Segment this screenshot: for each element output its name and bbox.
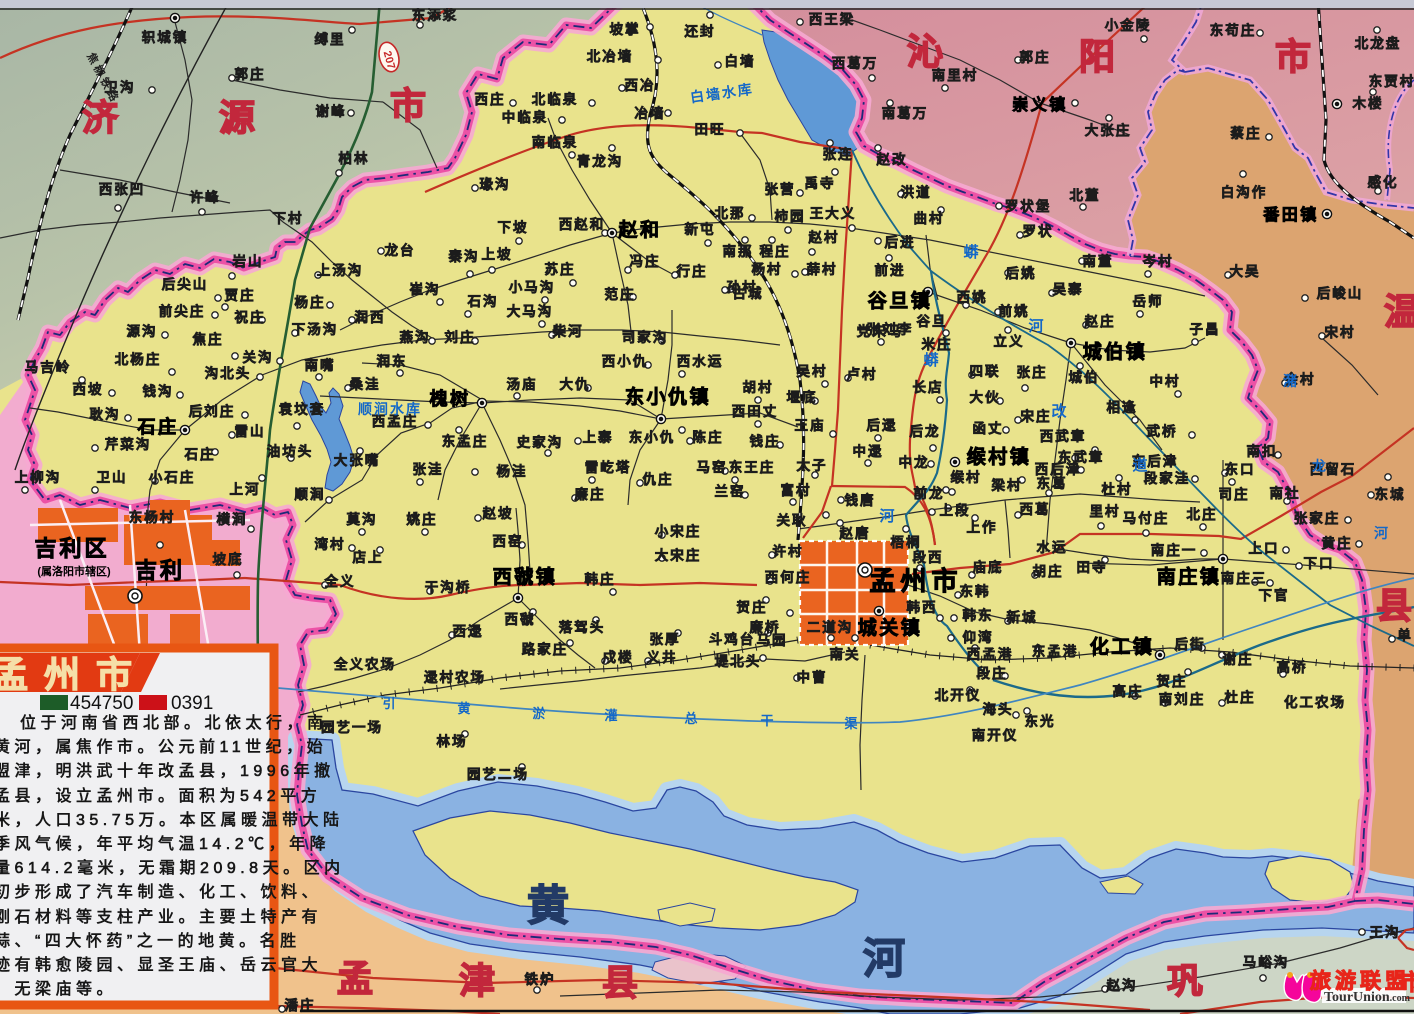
svg-text:横涧: 横涧 xyxy=(217,511,248,527)
svg-text:陈庄: 陈庄 xyxy=(693,429,724,445)
svg-text:源沟: 源沟 xyxy=(127,323,158,339)
svg-text:北龙盘: 北龙盘 xyxy=(1355,35,1402,51)
svg-text:北庄: 北庄 xyxy=(1187,506,1218,522)
svg-text:西水运: 西水运 xyxy=(677,353,724,369)
svg-text:蒜、“四大怀药”之一的地黄。名胜: 蒜、“四大怀药”之一的地黄。名胜 xyxy=(0,932,301,950)
svg-text:后峻山: 后峻山 xyxy=(1317,285,1364,301)
svg-text:干: 干 xyxy=(760,713,775,728)
svg-text:田寺: 田寺 xyxy=(1077,560,1108,575)
svg-text:大仇: 大仇 xyxy=(560,376,591,392)
svg-text:函丈: 函丈 xyxy=(973,421,1004,436)
svg-text:吴村: 吴村 xyxy=(797,363,828,379)
svg-text:前姚: 前姚 xyxy=(999,303,1030,319)
svg-text:西逯: 西逯 xyxy=(453,624,484,639)
svg-text:东小仇镇: 东小仇镇 xyxy=(625,385,711,408)
svg-text:木楼: 木楼 xyxy=(1352,95,1384,111)
svg-text:司庄: 司庄 xyxy=(1219,486,1250,502)
svg-text:沟北头: 沟北头 xyxy=(205,365,252,381)
svg-text:南开仪: 南开仪 xyxy=(972,727,1019,743)
svg-text:南扣: 南扣 xyxy=(1247,443,1278,459)
svg-text:卫山: 卫山 xyxy=(97,470,128,485)
svg-text:钱庄: 钱庄 xyxy=(750,433,781,449)
svg-text:道: 道 xyxy=(1132,456,1149,474)
svg-text:东杨村: 东杨村 xyxy=(129,509,176,525)
svg-text:孟州市: 孟州市 xyxy=(0,654,148,695)
svg-text:程庄: 程庄 xyxy=(760,243,791,259)
svg-text:韩庄: 韩庄 xyxy=(585,571,616,587)
svg-text:西孟港: 西孟港 xyxy=(967,646,1014,662)
svg-text:油坊头: 油坊头 xyxy=(267,443,314,459)
svg-text:落驾头: 落驾头 xyxy=(559,619,606,635)
svg-text:钱沟: 钱沟 xyxy=(143,383,174,399)
svg-text:城伯: 城伯 xyxy=(1069,369,1100,385)
svg-text:子昌: 子昌 xyxy=(1190,322,1221,337)
svg-text:盟津，明洪武十年改孟县，1996年撤: 盟津，明洪武十年改孟县，1996年撤 xyxy=(0,762,335,780)
svg-text:仰湾: 仰湾 xyxy=(963,629,994,645)
svg-text:谷旦: 谷旦 xyxy=(917,314,948,329)
svg-text:赵改: 赵改 xyxy=(876,151,908,167)
svg-text:祝庄: 祝庄 xyxy=(235,309,266,325)
svg-text:罗状堡: 罗状堡 xyxy=(1005,198,1052,214)
svg-text:赵村: 赵村 xyxy=(808,229,840,245)
svg-text:西武章: 西武章 xyxy=(1040,428,1087,444)
svg-text:西庄: 西庄 xyxy=(475,91,506,107)
svg-text:石沟: 石沟 xyxy=(467,293,499,309)
svg-text:耿沟: 耿沟 xyxy=(90,406,121,422)
svg-text:秦沟: 秦沟 xyxy=(448,248,480,264)
svg-text:冶墙: 冶墙 xyxy=(635,105,666,121)
svg-text:后姚: 后姚 xyxy=(1006,265,1037,281)
svg-text:宋村: 宋村 xyxy=(1325,324,1356,340)
svg-text:渠: 渠 xyxy=(843,716,859,731)
svg-text:赵唐: 赵唐 xyxy=(839,525,871,541)
svg-text:龙台: 龙台 xyxy=(384,242,416,258)
svg-text:中曹: 中曹 xyxy=(797,669,828,685)
svg-text:柴河: 柴河 xyxy=(552,323,584,339)
svg-text:蔡庄: 蔡庄 xyxy=(1230,125,1262,141)
svg-text:南关: 南关 xyxy=(830,646,861,662)
svg-text:贺庄: 贺庄 xyxy=(736,599,768,615)
svg-text:富村: 富村 xyxy=(781,482,812,498)
svg-text:大宋庄: 大宋庄 xyxy=(655,547,702,563)
svg-text:河: 河 xyxy=(879,507,896,525)
svg-text:吉利区: 吉利区 xyxy=(34,536,109,561)
svg-text:汤庙: 汤庙 xyxy=(507,376,538,392)
svg-text:逯村农场: 逯村农场 xyxy=(424,669,486,685)
svg-text:黄: 黄 xyxy=(527,882,569,929)
svg-text:量614.2毫米，无霜期209.8天。区内: 量614.2毫米，无霜期209.8天。区内 xyxy=(0,858,345,877)
svg-text:杨庄: 杨庄 xyxy=(295,294,326,310)
svg-text:黄河，属焦作市。公元前11世纪，始: 黄河，属焦作市。公元前11世纪，始 xyxy=(0,738,327,756)
svg-text:沁: 沁 xyxy=(907,31,943,72)
svg-text:龙: 龙 xyxy=(1311,458,1328,474)
svg-text:燕沟: 燕沟 xyxy=(400,329,431,345)
svg-text:东葛: 东葛 xyxy=(1037,475,1068,491)
svg-text:水运: 水运 xyxy=(1037,539,1068,555)
svg-text:梁村: 梁村 xyxy=(991,477,1023,493)
svg-text:梧桐: 梧桐 xyxy=(891,534,922,550)
svg-text:石庄: 石庄 xyxy=(184,446,216,462)
svg-text:轵城镇: 轵城镇 xyxy=(142,29,189,45)
svg-text:槐树: 槐树 xyxy=(429,388,471,409)
svg-text:长店: 长店 xyxy=(913,379,944,395)
svg-text:许村: 许村 xyxy=(773,543,804,559)
svg-text:店上: 店上 xyxy=(353,549,384,565)
svg-text:蟒: 蟒 xyxy=(963,243,980,261)
svg-text:南庄三: 南庄三 xyxy=(1221,570,1268,586)
svg-text:张营: 张营 xyxy=(765,181,796,197)
svg-text:全义农场: 全义农场 xyxy=(333,656,396,672)
svg-text:干沟桥: 干沟桥 xyxy=(425,579,472,595)
svg-text:洪道: 洪道 xyxy=(901,184,932,200)
svg-text:杜村: 杜村 xyxy=(1102,481,1133,497)
svg-text:小马沟: 小马沟 xyxy=(509,279,556,295)
svg-text:温: 温 xyxy=(1384,291,1414,332)
svg-text:赵和: 赵和 xyxy=(617,218,661,241)
svg-text:段家洼: 段家洼 xyxy=(1144,470,1191,486)
svg-text:高庄: 高庄 xyxy=(1113,683,1144,699)
svg-text:堤北头: 堤北头 xyxy=(715,653,762,669)
svg-text:岩山: 岩山 xyxy=(232,253,264,269)
svg-text:西葛万: 西葛万 xyxy=(832,55,879,71)
svg-text:大伙: 大伙 xyxy=(970,389,1001,405)
svg-text:后尖山: 后尖山 xyxy=(162,276,209,292)
svg-text:新城: 新城 xyxy=(1007,609,1038,625)
svg-text:小金陵: 小金陵 xyxy=(1105,17,1152,33)
svg-text:东韩: 东韩 xyxy=(960,583,991,599)
svg-text:454750: 454750 xyxy=(70,693,133,714)
svg-text:坡掌: 坡掌 xyxy=(610,21,641,37)
svg-text:仇庄: 仇庄 xyxy=(643,471,674,487)
svg-text:西冶: 西冶 xyxy=(625,77,656,93)
svg-text:下坡: 下坡 xyxy=(498,219,529,235)
svg-text:上口: 上口 xyxy=(1249,541,1280,556)
svg-text:孙村: 孙村 xyxy=(727,279,758,295)
svg-text:郭庄: 郭庄 xyxy=(1020,49,1051,65)
svg-text:马园: 马园 xyxy=(757,633,788,648)
svg-text:河: 河 xyxy=(863,935,905,982)
svg-text:新屯: 新屯 xyxy=(685,221,716,237)
svg-text:张连: 张连 xyxy=(823,146,854,162)
svg-text:前进: 前进 xyxy=(875,262,906,278)
svg-text:东苟庄: 东苟庄 xyxy=(1210,22,1257,38)
svg-text:、无梁庙等。: 、无梁庙等。 xyxy=(0,980,117,998)
svg-text:田旺: 田旺 xyxy=(695,122,726,137)
svg-text:化工镇: 化工镇 xyxy=(1090,635,1155,658)
svg-text:韩西: 韩西 xyxy=(907,599,938,615)
svg-text:胡庄: 胡庄 xyxy=(1033,563,1064,579)
svg-text:上作: 上作 xyxy=(967,519,998,535)
svg-text:四联: 四联 xyxy=(970,364,1001,379)
svg-text:瑑沟: 瑑沟 xyxy=(480,176,511,192)
svg-text:灌: 灌 xyxy=(604,708,619,723)
svg-text:桑洼: 桑洼 xyxy=(350,376,381,392)
svg-text:蟒: 蟒 xyxy=(923,351,940,369)
svg-text:上河: 上河 xyxy=(230,481,261,497)
svg-text:还封: 还封 xyxy=(684,23,716,39)
svg-text:河: 河 xyxy=(1028,317,1045,335)
svg-text:行庄: 行庄 xyxy=(676,263,708,279)
svg-text:崔沟: 崔沟 xyxy=(410,281,441,297)
svg-text:单: 单 xyxy=(1397,627,1413,643)
svg-text:东武章: 东武章 xyxy=(1058,449,1105,465)
svg-text:下口: 下口 xyxy=(1304,556,1335,571)
svg-text:柏林: 柏林 xyxy=(339,150,370,166)
svg-text:南庄镇: 南庄镇 xyxy=(1157,565,1222,588)
svg-text:西坡: 西坡 xyxy=(73,381,104,397)
svg-text:谢庄: 谢庄 xyxy=(1223,651,1254,667)
svg-text:东孟庄: 东孟庄 xyxy=(442,433,489,449)
svg-text:0391: 0391 xyxy=(171,693,213,714)
svg-text:淤: 淤 xyxy=(532,706,547,721)
svg-text:西田丈: 西田丈 xyxy=(732,404,779,419)
svg-text:河: 河 xyxy=(1374,525,1390,541)
svg-text:孟县，设立孟州市。面积为542平方: 孟县，设立孟州市。面积为542平方 xyxy=(0,787,321,805)
svg-text:高桥: 高桥 xyxy=(1277,659,1308,675)
svg-text:贺庄: 贺庄 xyxy=(1156,673,1188,689)
svg-text:番田镇: 番田镇 xyxy=(1262,205,1319,224)
svg-text:米，人口35.75万。本区属暖温带大陆: 米，人口35.75万。本区属暖温带大陆 xyxy=(0,811,344,829)
svg-text:西虢: 西虢 xyxy=(505,611,536,627)
svg-text:吴寨: 吴寨 xyxy=(1053,281,1084,297)
svg-text:莫沟: 莫沟 xyxy=(346,511,378,527)
svg-text:南嘴: 南嘴 xyxy=(305,357,336,373)
svg-text:市: 市 xyxy=(1275,36,1311,77)
svg-text:缑村镇: 缑村镇 xyxy=(967,445,1032,468)
svg-text:园艺一场: 园艺一场 xyxy=(321,719,383,735)
svg-text:下官: 下官 xyxy=(1259,587,1290,603)
svg-text:苏庄: 苏庄 xyxy=(545,261,576,277)
svg-text:北那: 北那 xyxy=(715,206,746,221)
svg-text:白墙: 白墙 xyxy=(725,53,756,69)
svg-text:后刘庄: 后刘庄 xyxy=(189,403,236,419)
svg-text:东城: 东城 xyxy=(1375,486,1406,502)
svg-text:袁坟套: 袁坟套 xyxy=(278,401,326,417)
svg-text:巩: 巩 xyxy=(1167,960,1203,1001)
svg-text:大吴: 大吴 xyxy=(1230,263,1261,279)
svg-text:曲村: 曲村 xyxy=(914,210,945,226)
svg-text:钱唐: 钱唐 xyxy=(845,492,876,508)
svg-text:西虢镇: 西虢镇 xyxy=(493,565,558,588)
svg-text:党宋马: 党宋马 xyxy=(857,323,904,339)
svg-text:罗状: 罗状 xyxy=(1023,223,1054,239)
svg-text:西姚: 西姚 xyxy=(957,289,988,305)
svg-text:雷山: 雷山 xyxy=(235,423,266,439)
svg-text:二道沟: 二道沟 xyxy=(807,619,854,635)
svg-text:上汤沟: 上汤沟 xyxy=(317,262,364,278)
svg-text:缚里: 缚里 xyxy=(315,31,346,47)
svg-text:南庄一: 南庄一 xyxy=(1151,542,1198,558)
svg-text:黄: 黄 xyxy=(457,701,472,716)
svg-text:林场: 林场 xyxy=(437,733,468,749)
svg-text:庙底: 庙底 xyxy=(973,559,1004,575)
svg-text:津: 津 xyxy=(459,960,495,1001)
svg-text:前龙: 前龙 xyxy=(914,485,945,501)
svg-text:孟州市: 孟州市 xyxy=(869,566,962,596)
svg-text:刚石材料等支柱产业。主要土特产有: 刚石材料等支柱产业。主要土特产有 xyxy=(0,908,322,926)
svg-text:下村: 下村 xyxy=(273,210,304,226)
svg-text:赵庄: 赵庄 xyxy=(1084,313,1116,329)
svg-text:改: 改 xyxy=(1051,402,1068,420)
svg-text:雷屹塔: 雷屹塔 xyxy=(585,459,632,475)
svg-text:卢村: 卢村 xyxy=(847,366,878,382)
svg-text:杜庄: 杜庄 xyxy=(1225,689,1256,705)
svg-text:初步形成了汽车制造、化工、饮料、: 初步形成了汽车制造、化工、饮料、 xyxy=(0,883,322,901)
svg-text:黄庄: 黄庄 xyxy=(1322,535,1353,551)
svg-text:全义: 全义 xyxy=(324,573,356,589)
svg-text:中龙: 中龙 xyxy=(899,454,930,470)
svg-text:南社: 南社 xyxy=(1270,485,1301,501)
svg-text:南刘庄: 南刘庄 xyxy=(1159,691,1206,707)
svg-text:义井: 义井 xyxy=(647,649,678,665)
svg-text:南临泉: 南临泉 xyxy=(532,134,579,150)
svg-text:下汤沟: 下汤沟 xyxy=(292,321,339,337)
svg-text:宋庄: 宋庄 xyxy=(1021,408,1052,424)
svg-text:韩东: 韩东 xyxy=(963,607,994,623)
svg-text:胡村: 胡村 xyxy=(743,379,774,395)
svg-text:谷旦镇: 谷旦镇 xyxy=(868,289,933,312)
svg-text:马峪沟: 马峪沟 xyxy=(1243,954,1290,970)
svg-text:冯庄: 冯庄 xyxy=(630,253,661,269)
svg-text:太子: 太子 xyxy=(797,457,828,473)
svg-text:王沟: 王沟 xyxy=(1370,924,1401,940)
svg-text:小宋庄: 小宋庄 xyxy=(655,523,702,539)
svg-text:东王庄: 东王庄 xyxy=(729,459,776,475)
svg-text:王大义: 王大义 xyxy=(810,205,857,221)
svg-text:海头: 海头 xyxy=(983,701,1014,717)
svg-text:史家沟: 史家沟 xyxy=(517,434,564,450)
svg-text:后进: 后进 xyxy=(885,234,916,250)
svg-text:东小仇: 东小仇 xyxy=(629,429,676,445)
svg-text:南葛万: 南葛万 xyxy=(882,105,929,121)
svg-text:东口: 东口 xyxy=(1225,461,1256,477)
svg-text:坡底: 坡底 xyxy=(213,551,244,567)
svg-text:路家庄: 路家庄 xyxy=(522,641,569,657)
svg-text:兰窑: 兰窑 xyxy=(715,483,746,499)
svg-text:上段: 上段 xyxy=(940,502,971,518)
svg-text:西何庄: 西何庄 xyxy=(765,569,812,585)
svg-text:化工农场: 化工农场 xyxy=(1284,694,1346,710)
svg-text:禹寺: 禹寺 xyxy=(805,176,836,191)
svg-text:北杨庄: 北杨庄 xyxy=(115,351,162,367)
svg-text:西小仇: 西小仇 xyxy=(602,353,649,369)
svg-text:杨洼: 杨洼 xyxy=(497,463,528,479)
svg-text:城伯镇: 城伯镇 xyxy=(1083,340,1148,363)
svg-text:城关镇: 城关镇 xyxy=(858,616,923,639)
svg-text:柿园: 柿园 xyxy=(775,208,806,224)
svg-text:上寨: 上寨 xyxy=(583,429,614,445)
svg-text:赵坡: 赵坡 xyxy=(482,505,514,521)
svg-text:岳师: 岳师 xyxy=(1133,293,1164,309)
svg-text:西赵和: 西赵和 xyxy=(559,216,606,232)
svg-text:堰底: 堰底 xyxy=(787,389,818,405)
svg-text:大张嘴: 大张嘴 xyxy=(334,452,381,468)
svg-text:孟: 孟 xyxy=(337,958,373,999)
svg-text:王庙: 王庙 xyxy=(795,417,826,433)
svg-text:芹菜沟: 芹菜沟 xyxy=(105,436,152,452)
svg-text:后街: 后街 xyxy=(1175,636,1206,652)
svg-text:郭庄: 郭庄 xyxy=(235,66,266,82)
svg-text:北开仪: 北开仪 xyxy=(935,688,982,703)
svg-text:吉利: 吉利 xyxy=(135,558,185,583)
svg-text:引: 引 xyxy=(382,696,397,711)
svg-text:前尖庄: 前尖庄 xyxy=(159,303,206,319)
svg-text:大马沟: 大马沟 xyxy=(507,303,554,319)
svg-text:青龙沟: 青龙沟 xyxy=(577,153,624,169)
svg-text:上坡: 上坡 xyxy=(482,246,513,262)
svg-text:西窑: 西窑 xyxy=(493,533,524,549)
svg-text:北临泉: 北临泉 xyxy=(532,91,579,107)
svg-text:司家沟: 司家沟 xyxy=(622,329,669,345)
svg-text:斗鸡台: 斗鸡台 xyxy=(709,631,756,647)
svg-text:南那: 南那 xyxy=(723,243,754,259)
svg-text:县: 县 xyxy=(602,962,638,1003)
svg-text:马付庄: 马付庄 xyxy=(1123,510,1170,526)
svg-text:湾村: 湾村 xyxy=(315,536,346,552)
svg-text:关沟: 关沟 xyxy=(243,349,274,365)
svg-text:迹有韩愈陵园、显圣王庙、岳云官大: 迹有韩愈陵园、显圣王庙、岳云官大 xyxy=(0,956,322,974)
svg-text:潴: 潴 xyxy=(1283,373,1299,389)
svg-text:顺涧: 顺涧 xyxy=(295,486,326,502)
svg-text:润东: 润东 xyxy=(377,353,408,369)
svg-text:姚庄: 姚庄 xyxy=(406,511,438,527)
svg-text:贾庄: 贾庄 xyxy=(225,287,256,303)
svg-text:TourUnion.com: TourUnion.com xyxy=(1324,990,1411,1005)
svg-text:阳: 阳 xyxy=(1079,36,1115,77)
svg-text:铁炉: 铁炉 xyxy=(525,971,556,987)
svg-text:马窑: 马窑 xyxy=(697,459,728,475)
svg-text:许峰: 许峰 xyxy=(190,189,221,205)
svg-text:白沟作: 白沟作 xyxy=(1221,184,1268,200)
svg-text:刘庄: 刘庄 xyxy=(445,329,476,345)
svg-text:后逯: 后逯 xyxy=(867,417,898,433)
svg-text:中逯: 中逯 xyxy=(853,443,884,459)
svg-text:北董: 北董 xyxy=(1070,187,1101,203)
svg-text:县: 县 xyxy=(1376,585,1412,626)
svg-text:西葛: 西葛 xyxy=(1020,501,1051,517)
svg-text:关耿: 关耿 xyxy=(777,512,808,528)
svg-text:石庄: 石庄 xyxy=(137,416,179,437)
svg-text:马吉岭: 马吉岭 xyxy=(25,359,72,375)
svg-text:上柳沟: 上柳沟 xyxy=(15,469,62,485)
svg-text:源: 源 xyxy=(219,97,255,138)
svg-text:焦庄: 焦庄 xyxy=(192,331,224,347)
svg-text:谢峰: 谢峰 xyxy=(316,103,347,119)
svg-text:西王梁: 西王梁 xyxy=(809,11,856,27)
svg-text:润西: 润西 xyxy=(355,309,386,325)
svg-text:市: 市 xyxy=(390,85,426,126)
svg-text:季风气候，年平均气温14.2℃，年降: 季风气候，年平均气温14.2℃，年降 xyxy=(0,835,330,853)
svg-text:(属洛阳市辖区): (属洛阳市辖区) xyxy=(37,564,111,578)
svg-text:感化: 感化 xyxy=(1368,174,1399,190)
svg-text:北冶墙: 北冶墙 xyxy=(587,48,634,64)
svg-text:崇义镇: 崇义镇 xyxy=(1012,95,1068,114)
svg-text:张庄: 张庄 xyxy=(1017,364,1048,380)
svg-text:总: 总 xyxy=(684,711,699,726)
svg-text:张洼: 张洼 xyxy=(413,461,444,477)
svg-text:西张凹: 西张凹 xyxy=(99,182,146,197)
svg-text:顺涧水库: 顺涧水库 xyxy=(358,401,422,417)
svg-text:张家庄: 张家庄 xyxy=(1294,510,1341,526)
svg-text:武桥: 武桥 xyxy=(1147,423,1178,439)
svg-text:范庄: 范庄 xyxy=(605,286,636,302)
svg-text:东贾村: 东贾村 xyxy=(1369,73,1414,89)
svg-text:段庄: 段庄 xyxy=(977,665,1008,681)
svg-text:中村: 中村 xyxy=(1150,373,1181,389)
svg-text:小石庄: 小石庄 xyxy=(149,469,196,485)
svg-text:赵沟: 赵沟 xyxy=(1106,977,1138,993)
svg-text:段西: 段西 xyxy=(913,549,944,565)
